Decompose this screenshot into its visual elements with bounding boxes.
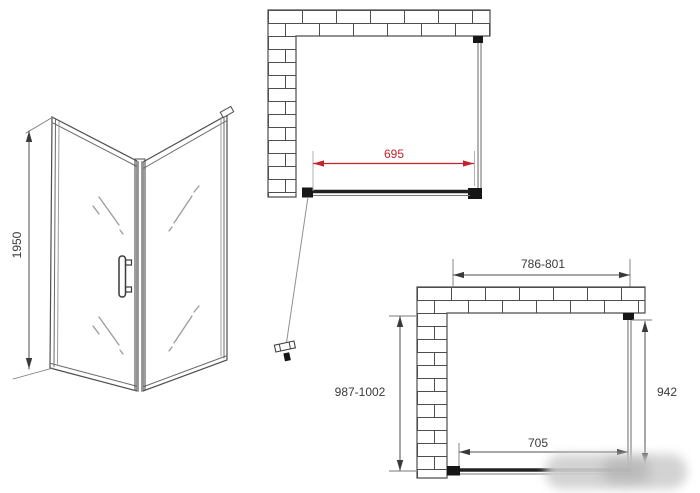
glass-width-dimension: 695 bbox=[313, 147, 475, 191]
wall-profile-connector bbox=[623, 313, 634, 320]
height-dimension-label: 1950 bbox=[10, 231, 24, 258]
door-hinge bbox=[302, 188, 313, 198]
technical-drawing-canvas: 1950 bbox=[0, 0, 700, 493]
door-swing bbox=[274, 197, 308, 363]
side-panel-dimension: 942 bbox=[632, 320, 677, 464]
fixed-panel-plan bbox=[623, 313, 634, 467]
fixed-panel-plan bbox=[468, 36, 483, 199]
corner-cap bbox=[220, 106, 233, 117]
door-hinge bbox=[447, 466, 460, 476]
glass-width-dimension-label: 695 bbox=[384, 147, 404, 161]
door-handle-plan bbox=[274, 341, 297, 363]
perspective-view: 1950 bbox=[10, 106, 234, 391]
outer-depth-dimension: 987-1002 bbox=[335, 316, 416, 471]
outer-width-dimension-label: 786-801 bbox=[521, 257, 565, 271]
door-panel bbox=[50, 117, 137, 391]
door-plan bbox=[447, 466, 631, 476]
door-width-dimension: 705 bbox=[459, 436, 628, 469]
drawing-svg: 1950 bbox=[0, 0, 700, 493]
installation-plan-view: 786-801 987-1002 942 bbox=[335, 257, 678, 478]
side-panel-dimension-label: 942 bbox=[657, 385, 677, 399]
door-width-dimension-label: 705 bbox=[528, 436, 548, 450]
corner-connector bbox=[468, 188, 482, 199]
height-dimension: 1950 bbox=[10, 117, 53, 379]
outer-depth-dimension-label: 987-1002 bbox=[335, 385, 386, 399]
wall-profile-connector bbox=[473, 36, 483, 43]
brick-wall bbox=[268, 10, 490, 197]
side-panel bbox=[143, 106, 234, 391]
door-plan bbox=[302, 188, 470, 198]
